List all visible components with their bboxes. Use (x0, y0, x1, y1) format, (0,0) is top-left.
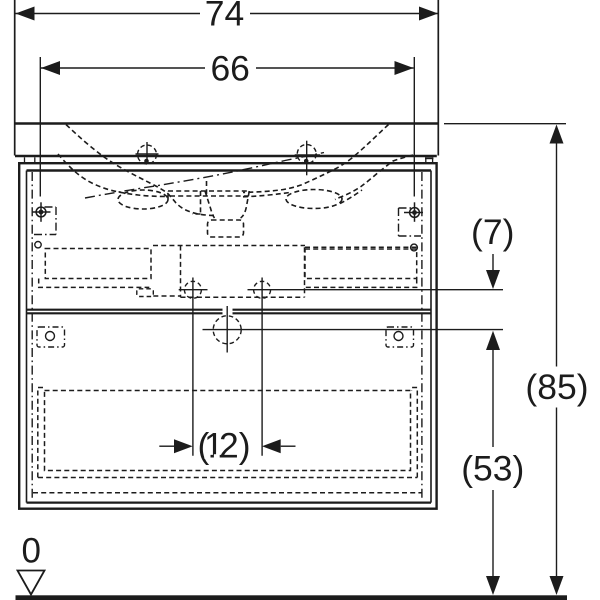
svg-text:(7): (7) (471, 212, 514, 252)
svg-text:74: 74 (205, 0, 245, 33)
svg-text:2: 2 (219, 426, 239, 466)
svg-text:0: 0 (21, 532, 40, 571)
svg-text:(53): (53) (461, 448, 524, 488)
svg-text:(85): (85) (525, 367, 588, 407)
svg-text:): ) (239, 426, 251, 466)
svg-text:66: 66 (210, 49, 250, 89)
